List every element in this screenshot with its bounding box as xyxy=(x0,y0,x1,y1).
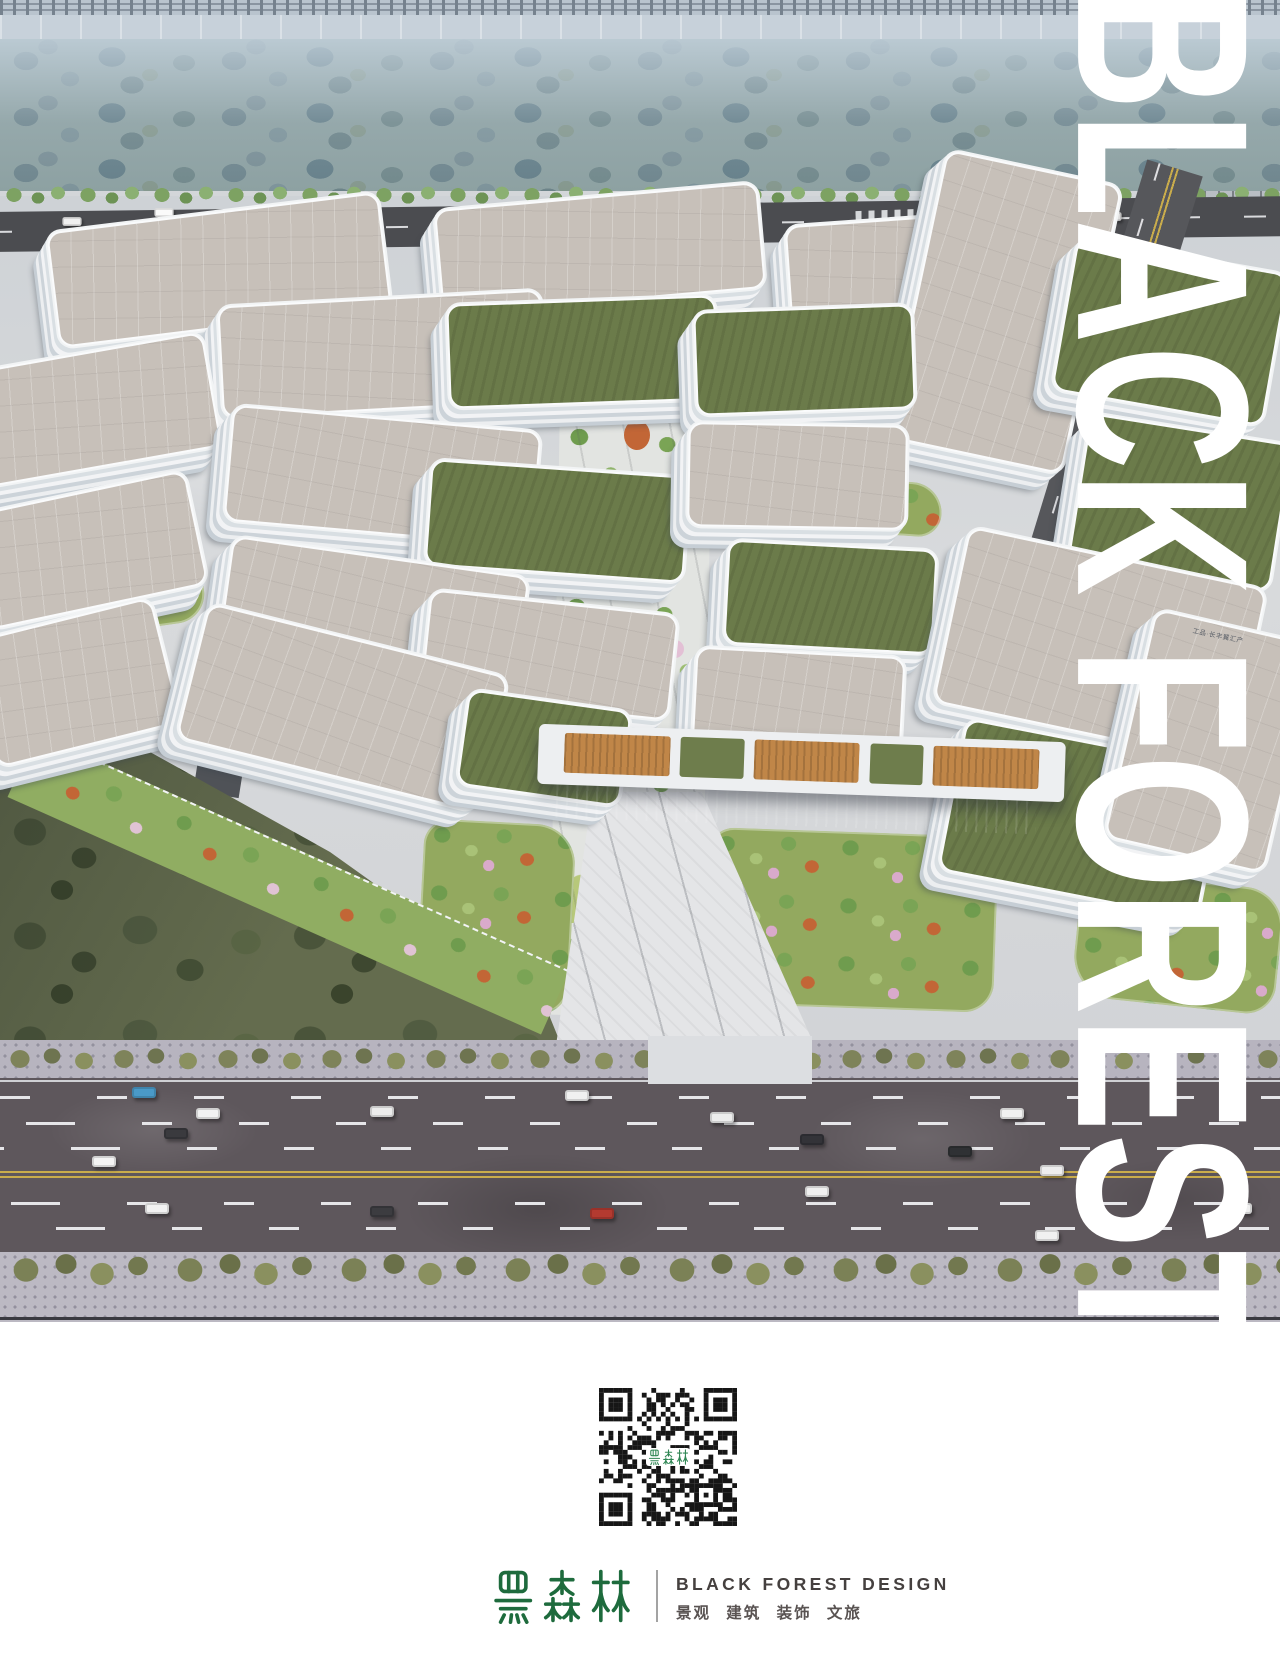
river-quay xyxy=(0,15,1280,39)
river-greenbelt xyxy=(0,39,1280,191)
brand-name-en: BLACK FOREST DESIGN xyxy=(676,1574,950,1595)
building-green-roof xyxy=(723,540,937,655)
car xyxy=(565,1090,589,1101)
car xyxy=(1228,1203,1252,1214)
brand-logo-cn xyxy=(482,1568,642,1624)
bridge-wood-deck xyxy=(564,733,671,777)
car xyxy=(948,1146,972,1157)
car xyxy=(710,1112,734,1123)
entrance-drive xyxy=(648,1036,812,1084)
building xyxy=(687,422,908,530)
car xyxy=(370,1106,394,1117)
building-green-roof xyxy=(425,459,691,583)
bridge-wood-deck xyxy=(933,746,1040,790)
car xyxy=(164,1128,188,1139)
brand-services: 景观 建筑 装饰 文旅 xyxy=(676,1601,862,1623)
bridge-wood-deck xyxy=(753,739,860,783)
brand-lockup: 黑森林 BLACK FOREST DESIGN 景观 建筑 装饰 文旅 xyxy=(0,1562,1280,1632)
bridge-green-roof xyxy=(680,737,745,779)
building-green-roof xyxy=(693,304,915,416)
lane-marking xyxy=(0,1147,1280,1150)
aerial-render: 工品·长丰翼汇产 xyxy=(0,0,1280,1322)
lane-marking xyxy=(0,1227,1280,1230)
bridge-green-roof xyxy=(869,743,923,785)
car xyxy=(154,208,173,217)
double-yellow-line xyxy=(0,1176,1280,1178)
arterial-road xyxy=(0,1078,1280,1252)
qr-center-label: 黑森林 xyxy=(0,1322,1,1323)
poster-root: 工品·长丰翼汇产 xyxy=(0,0,1280,1667)
car xyxy=(590,1208,614,1219)
brand-divider xyxy=(656,1570,658,1622)
lane-marking xyxy=(0,1096,1280,1099)
road-edge-line xyxy=(0,1080,1280,1082)
car xyxy=(370,1206,394,1217)
footer: 黑森林 黑森林 BLACK FOREST DESIGN 景观 建筑 装饰 文旅 xyxy=(0,1322,1280,1667)
riverside-fence xyxy=(0,0,1280,15)
qr-code xyxy=(599,1388,737,1526)
car xyxy=(62,217,81,226)
brand-logo-label: 黑森林 xyxy=(0,1562,1,1563)
sidewalk-trees xyxy=(0,1040,1280,1078)
car xyxy=(1000,1108,1024,1119)
lane-marking xyxy=(0,1202,1280,1205)
double-yellow-line xyxy=(0,1171,1280,1173)
building-green-roof xyxy=(446,295,718,408)
car xyxy=(132,1087,156,1098)
car xyxy=(196,1108,220,1119)
car xyxy=(805,1186,829,1197)
lane-marking xyxy=(0,1122,1280,1125)
car xyxy=(800,1134,824,1145)
sidewalk-trees-south xyxy=(0,1240,1280,1304)
accent-tree-orange xyxy=(624,420,650,450)
car xyxy=(92,1156,116,1167)
car xyxy=(145,1203,169,1214)
car xyxy=(1040,1165,1064,1176)
